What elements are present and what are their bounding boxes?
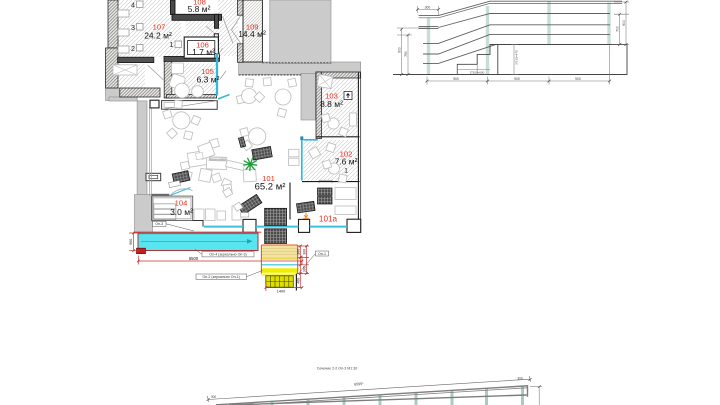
svg-text:3: 3	[131, 23, 135, 32]
svg-text:Оп-4 (зеркально Оп-3): Оп-4 (зеркально Оп-3)	[209, 253, 246, 257]
svg-text:Барная стойка: Барная стойка	[209, 158, 226, 162]
svg-text:Сечение 2-2 Оп-3 М1:30: Сечение 2-2 Оп-3 М1:30	[317, 367, 357, 371]
svg-text:300: 300	[425, 5, 431, 9]
svg-text:900: 900	[514, 77, 520, 81]
svg-text:2*300+600: 2*300+600	[470, 70, 485, 74]
svg-text:300: 300	[211, 395, 217, 399]
svg-text:900: 900	[129, 239, 133, 245]
svg-text:24.2 м²: 24.2 м²	[144, 30, 172, 40]
svg-text:Оп-1: Оп-1	[318, 252, 326, 256]
svg-text:102: 102	[340, 150, 353, 159]
svg-text:Оп-2 (зеркально Оп-1): Оп-2 (зеркально Оп-1)	[202, 275, 239, 279]
svg-text:300: 300	[517, 377, 523, 381]
svg-text:900: 900	[575, 77, 581, 81]
svg-text:4: 4	[131, 0, 135, 9]
svg-text:900: 900	[453, 77, 459, 81]
svg-text:6595*: 6595*	[354, 382, 364, 387]
svg-text:1: 1	[344, 167, 348, 174]
svg-text:1400: 1400	[277, 289, 285, 293]
svg-text:1: 1	[170, 40, 174, 49]
svg-text:109: 109	[246, 22, 259, 31]
svg-text:900: 900	[622, 20, 626, 26]
svg-text:3*163=475: 3*163=475	[515, 50, 519, 65]
svg-text:108: 108	[193, 0, 206, 7]
svg-text:101: 101	[262, 174, 275, 183]
svg-text:300: 300	[296, 249, 300, 255]
svg-text:2: 2	[131, 44, 135, 53]
svg-text:107: 107	[153, 23, 166, 32]
svg-text:103: 103	[325, 92, 338, 101]
svg-text:104: 104	[175, 199, 188, 208]
svg-text:106: 106	[196, 41, 209, 50]
svg-text:3.0 м²: 3.0 м²	[170, 207, 193, 217]
svg-text:900: 900	[397, 47, 401, 53]
svg-text:400: 400	[296, 278, 300, 284]
svg-text:300: 300	[303, 266, 307, 272]
svg-text:790: 790	[404, 51, 408, 57]
svg-text:700: 700	[616, 26, 620, 32]
svg-text:101a: 101a	[319, 215, 338, 224]
svg-text:300: 300	[303, 249, 307, 255]
svg-text:Оп-3: Оп-3	[155, 222, 163, 226]
svg-text:65.2 м²: 65.2 м²	[255, 181, 286, 192]
svg-text:105: 105	[201, 67, 214, 76]
svg-text:6500: 6500	[189, 256, 199, 261]
